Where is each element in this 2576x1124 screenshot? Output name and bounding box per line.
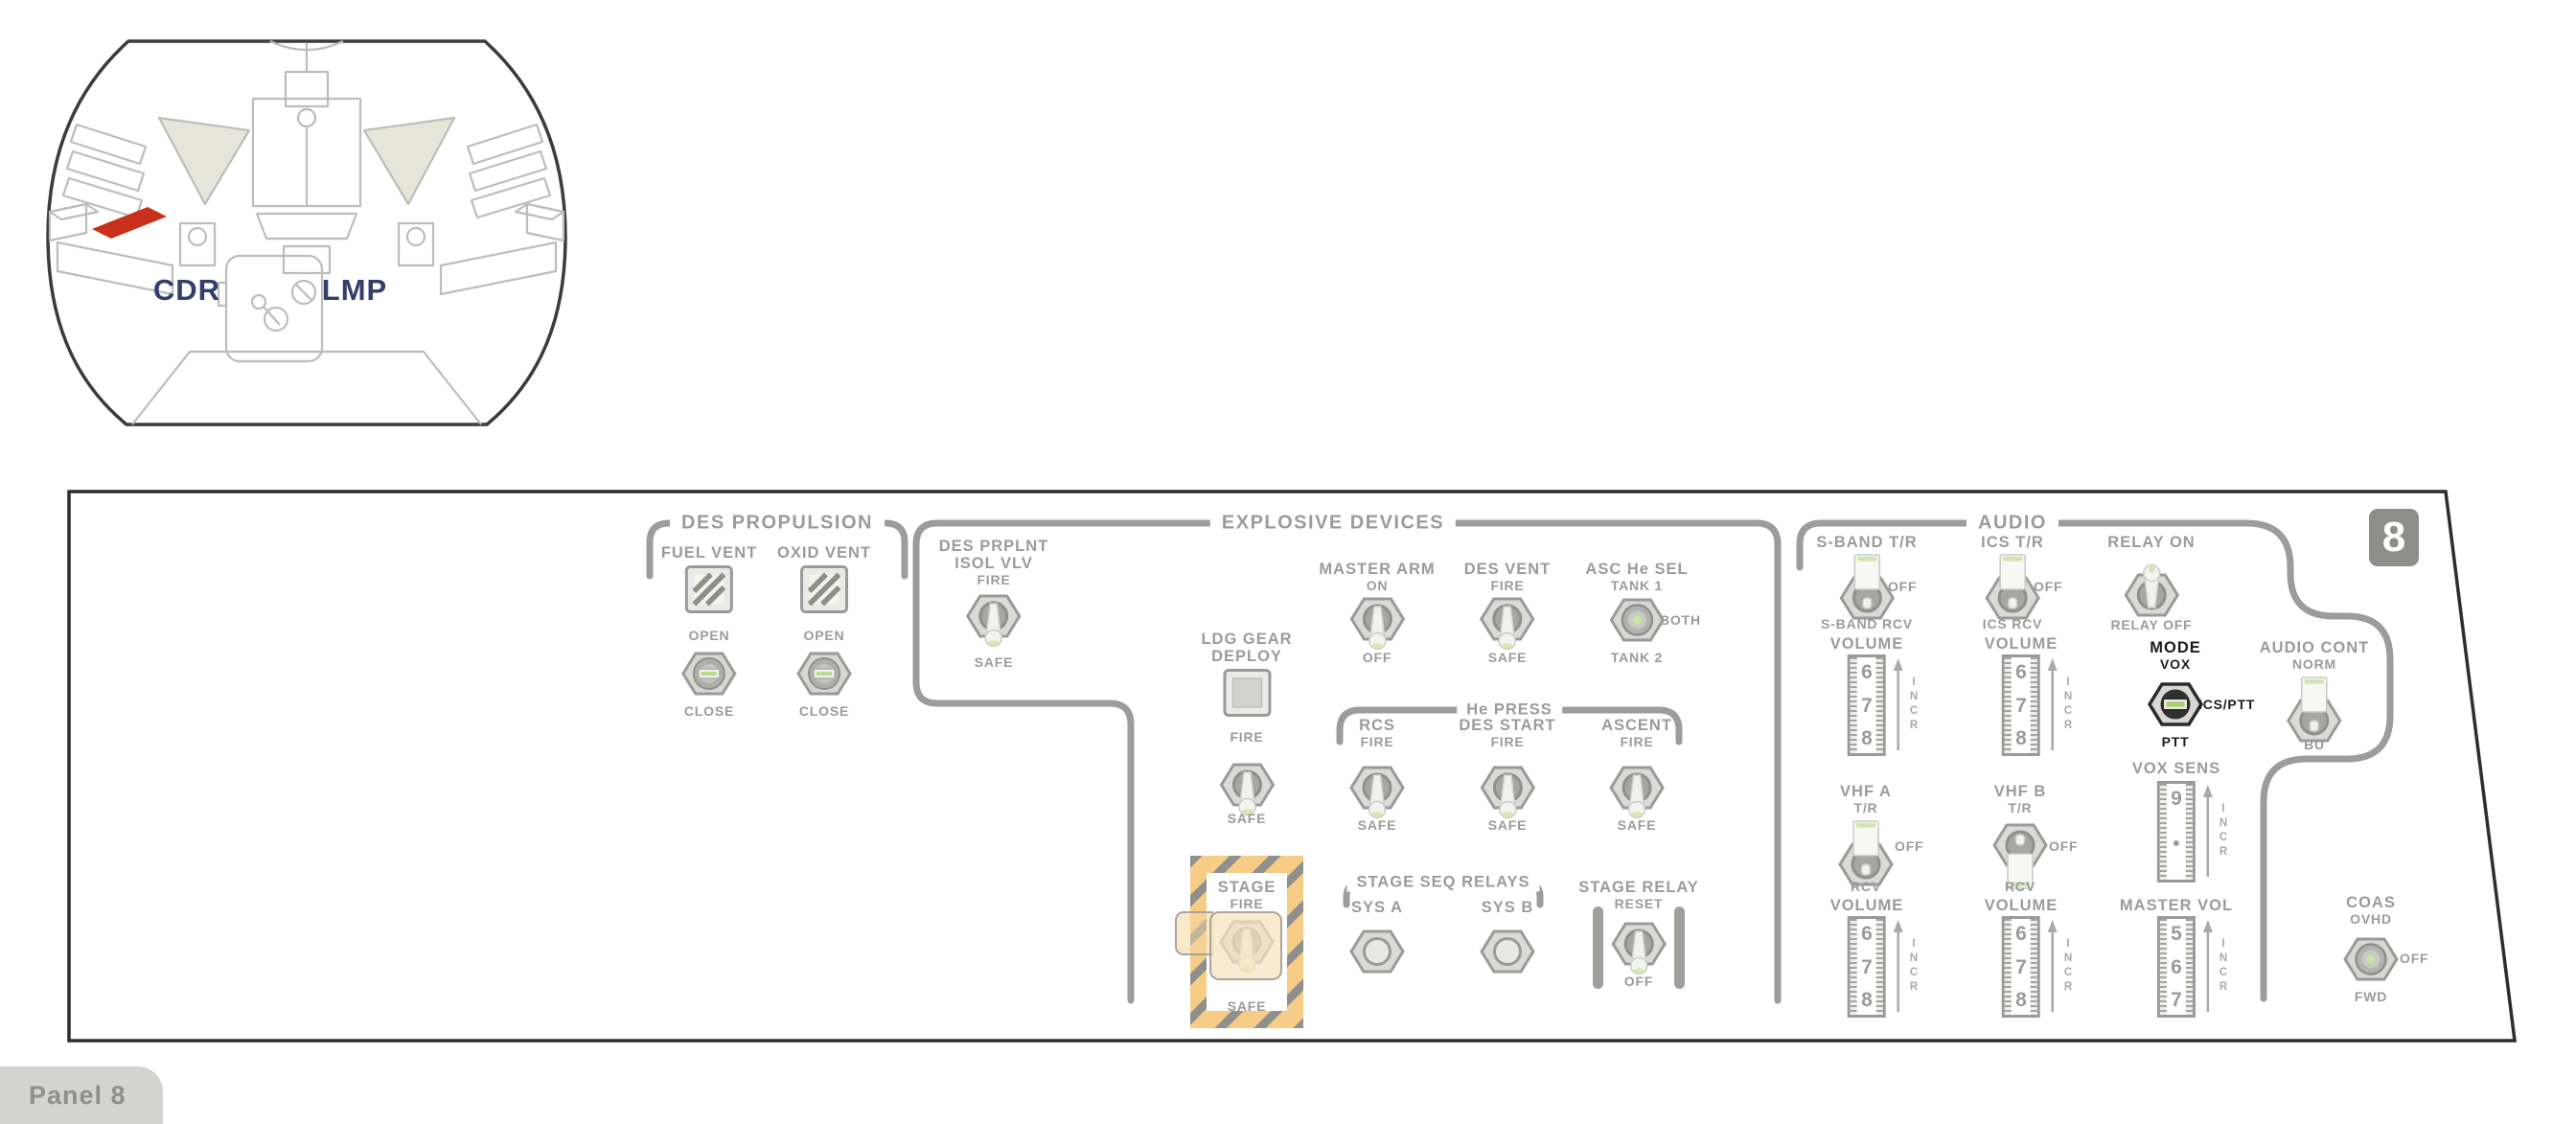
ldg-gear-safe-label: SAFE [1228,811,1267,827]
incr-arrow-icon [1893,920,1904,1014]
he-press-ascent-control: ASCENT FIRE SAFE [1601,717,1672,834]
audio-cont-switch[interactable] [2286,676,2343,746]
vhf-b-control: VHF B T/R RCV OFF [1991,783,2049,895]
cdr-station-label: CDR [153,273,220,307]
des-vent-control: DES VENT FIRE SAFE [1464,561,1552,666]
oxid-vent-close-label: CLOSE [799,703,849,720]
stage-relay-guard-bar-right [1674,906,1685,989]
coas-control: COAS OVHD FWD OFF [2342,894,2400,1005]
incr-arrow-icon [1893,658,1904,752]
vhf-b-volume-label: VOLUME [1985,897,2058,914]
oxid-vent-talkback-indicator [799,564,849,614]
s-band-tr-switch[interactable] [1838,553,1896,624]
mode-ics-ptt-label: ICS/PTT [2198,697,2255,713]
section-title-explosive-devices: EXPLOSIVE DEVICES [1210,513,1456,535]
s-band-volume-label: VOLUME [1830,635,1904,653]
des-prplnt-isol-vlv-switch[interactable] [965,590,1023,657]
master-arm-on-label: ON [1367,578,1389,594]
ics-rcv-label: ICS RCV [1983,616,2042,632]
asc-he-sel-control: ASC He SEL TANK 1 TANK 2 BOTH [1585,561,1688,666]
vhf-b-volume-thumbwheel[interactable]: 6 7 8 [2002,916,2040,1018]
sys-b-pushbutton[interactable] [1479,924,1536,979]
ics-tr-switch[interactable] [1984,553,2041,624]
ics-tr-control: ICS T/R ICS RCV OFF [1981,534,2044,632]
ics-volume-control: VOLUME 6 7 8 INCR [1985,635,2058,756]
asc-he-sel-tank2-label: TANK 2 [1611,650,1663,666]
s-band-volume-thumbwheel[interactable]: 6 7 8 [1848,654,1886,756]
s-band-off-label: OFF [1888,579,1917,595]
incr-indicator: INCR [2047,918,2074,1016]
cockpit-location-inset: CDR LMP [29,14,585,441]
ascent-label: ASCENT [1601,717,1672,734]
stage-relay-reset-label: RESET [1615,896,1664,912]
fuel-vent-control: FUEL VENT OPEN CLOSE [661,544,757,720]
panel-8-tab: Panel 8 [0,1067,163,1124]
vhf-b-tr-label: T/R [2009,800,2033,816]
section-title-stage-seq-relays: STAGE SEQ RELAYS [1346,874,1539,892]
s-band-volume-control: VOLUME 6 7 8 INCR [1830,635,1904,756]
stage-hazard-frame: STAGE FIRE SAFE [1190,856,1303,1028]
vhf-a-tr-label: T/R [1854,800,1878,816]
incr-indicator: INCR [2202,783,2229,881]
vhf-b-label: VHF B [1994,783,2047,800]
relay-on-label: RELAY ON [2107,534,2195,551]
ldg-gear-deploy-indicator [1222,668,1272,718]
rcs-fire-label: FIRE [1360,734,1393,750]
vhf-a-rcv-label: RCV [1851,879,1881,895]
vhf-b-volume-control: VOLUME 6 7 8 INCR [1985,897,2058,1018]
mode-ptt-label: PTT [2162,734,2190,750]
stage-label: STAGE [1218,879,1276,896]
ldg-gear-fire-label: FIRE [1230,729,1263,746]
ascent-safe-label: SAFE [1618,817,1657,834]
vhf-a-off-label: OFF [1895,838,1923,855]
fuel-vent-talkback-indicator [684,564,734,614]
stage-safe-label: SAFE [1228,998,1267,1015]
des-start-label: DES START [1459,717,1555,734]
fuel-vent-open-label: OPEN [689,628,730,644]
vox-sens-control: VOX SENS 9 ● INCR [2132,760,2220,883]
asc-he-sel-label: ASC He SEL [1585,561,1688,578]
incr-indicator: INCR [2047,656,2074,754]
incr-arrow-icon [2047,920,2058,1014]
master-vol-control: MASTER VOL 5 6 7 INCR [2120,897,2233,1018]
mode-vox-label: VOX [2160,656,2191,673]
sys-b-label: SYS B [1482,899,1534,916]
fuel-vent-valve-knob[interactable] [680,646,738,701]
vhf-a-control: VHF A T/R RCV OFF [1837,783,1895,895]
audio-cont-label: AUDIO CONT [2260,639,2370,656]
rcs-safe-label: SAFE [1358,817,1397,834]
stage-seq-sys-a-control: SYS A [1348,899,1406,979]
lmp-station-label: LMP [322,273,387,307]
fuel-vent-close-label: CLOSE [684,703,734,720]
vox-sens-thumbwheel[interactable]: 9 ● [2157,781,2196,883]
stage-relay-off-label: OFF [1624,974,1653,990]
des-start-fire-label: FIRE [1490,734,1524,750]
stage-fire-label: FIRE [1230,896,1263,912]
oxid-vent-valve-knob[interactable] [795,646,853,701]
s-band-tr-label: S-BAND T/R [1816,534,1917,551]
coas-fwd-label: FWD [2355,989,2387,1005]
ics-volume-thumbwheel[interactable]: 6 7 8 [2002,654,2040,756]
audio-cont-bu-label: BU [2304,737,2325,753]
master-vol-label: MASTER VOL [2120,897,2233,914]
ics-tr-label: ICS T/R [1981,534,2044,551]
des-prplnt-fire-label: FIRE [977,572,1010,588]
ascent-fire-label: FIRE [1620,734,1653,750]
panel-number-badge: 8 [2369,509,2419,566]
incr-arrow-icon [2202,785,2214,879]
coas-off-label: OFF [2400,951,2428,967]
vhf-a-volume-label: VOLUME [1830,897,1904,914]
coas-ovhd-label: OVHD [2350,911,2392,928]
vhf-b-off-label: OFF [2049,838,2078,855]
des-prplnt-safe-label: SAFE [975,654,1014,671]
ics-volume-label: VOLUME [1985,635,2058,653]
mode-control: MODE VOX PTT ICS/PTT [2147,639,2204,750]
s-band-tr-control: S-BAND T/R S-BAND RCV OFF [1816,534,1917,632]
oxid-vent-label: OXID VENT [777,544,871,562]
section-title-des-propulsion: DES PROPULSION [670,513,885,535]
vox-sens-label: VOX SENS [2132,760,2220,777]
coas-selector-knob[interactable] [2342,931,2400,987]
des-vent-label: DES VENT [1464,561,1552,578]
s-band-rcv-label: S-BAND RCV [1821,616,1913,632]
des-prplnt-label-2: ISOL VLV [954,555,1033,572]
ldg-gear-deploy-control: LDG GEAR DEPLOY FIRE SAFE [1201,631,1292,827]
he-press-rcs-control: RCS FIRE SAFE [1348,717,1406,834]
section-title-he-press: He PRESS [1457,701,1562,720]
incr-indicator: INCR [1893,656,1920,754]
he-press-des-start-control: DES START FIRE SAFE [1459,717,1555,834]
section-title-audio: AUDIO [1966,513,2058,535]
mode-label: MODE [2150,639,2201,656]
ldg-gear-label-1: LDG GEAR [1201,631,1292,648]
vhf-a-volume-control: VOLUME 6 7 8 INCR [1830,897,1904,1018]
incr-indicator: INCR [2202,918,2229,1016]
ics-off-label: OFF [2034,579,2062,595]
des-prplnt-label-1: DES PRPLNT [939,538,1049,555]
stage-relay-label: STAGE RELAY [1578,879,1699,896]
sys-a-label: SYS A [1351,899,1403,916]
asc-he-sel-knob[interactable] [1608,592,1666,648]
relay-switch[interactable] [2123,554,2180,621]
des-vent-fire-label: FIRE [1490,578,1524,594]
panel-8-diagram: CDR LMP DES PROPULSION EXPLOSIVE DEVICES… [0,0,2576,1124]
master-arm-control: MASTER ARM ON OFF [1319,561,1435,666]
stage-switch-guard-tab[interactable] [1175,911,1213,955]
ldg-gear-label-2: DEPLOY [1211,648,1282,665]
stage-switch-guard[interactable] [1209,911,1282,980]
stage-relay-guard-bar-left [1593,906,1603,989]
rcs-label: RCS [1359,717,1395,734]
master-vol-thumbwheel[interactable]: 5 6 7 [2157,916,2196,1018]
oxid-vent-open-label: OPEN [804,628,845,644]
vhf-a-label: VHF A [1840,783,1892,800]
audio-cont-control: AUDIO CONT NORM BU [2260,639,2370,753]
des-prplnt-isol-vlv-control: DES PRPLNT ISOL VLV FIRE SAFE [939,538,1049,671]
incr-indicator: INCR [1893,918,1920,1016]
sys-a-pushbutton[interactable] [1348,924,1406,979]
coas-label: COAS [2346,894,2396,911]
incr-arrow-icon [2047,658,2058,752]
relay-control: RELAY ON RELAY OFF [2107,534,2195,633]
relay-off-label: RELAY OFF [2110,617,2192,633]
incr-arrow-icon [2202,920,2214,1014]
vhf-a-volume-thumbwheel[interactable]: 6 7 8 [1848,916,1886,1018]
des-vent-safe-label: SAFE [1488,650,1528,666]
master-arm-label: MASTER ARM [1319,561,1435,578]
asc-he-sel-both-label: BOTH [1660,612,1701,629]
mode-selector-knob[interactable] [2147,677,2204,732]
fuel-vent-label: FUEL VENT [661,544,757,562]
master-arm-off-label: OFF [1363,650,1391,666]
oxid-vent-control: OXID VENT OPEN CLOSE [777,544,871,720]
des-start-safe-label: SAFE [1488,817,1528,834]
audio-cont-norm-label: NORM [2292,656,2336,673]
vhf-b-rcv-label: RCV [2005,879,2035,895]
stage-seq-sys-b-control: SYS B [1479,899,1536,979]
